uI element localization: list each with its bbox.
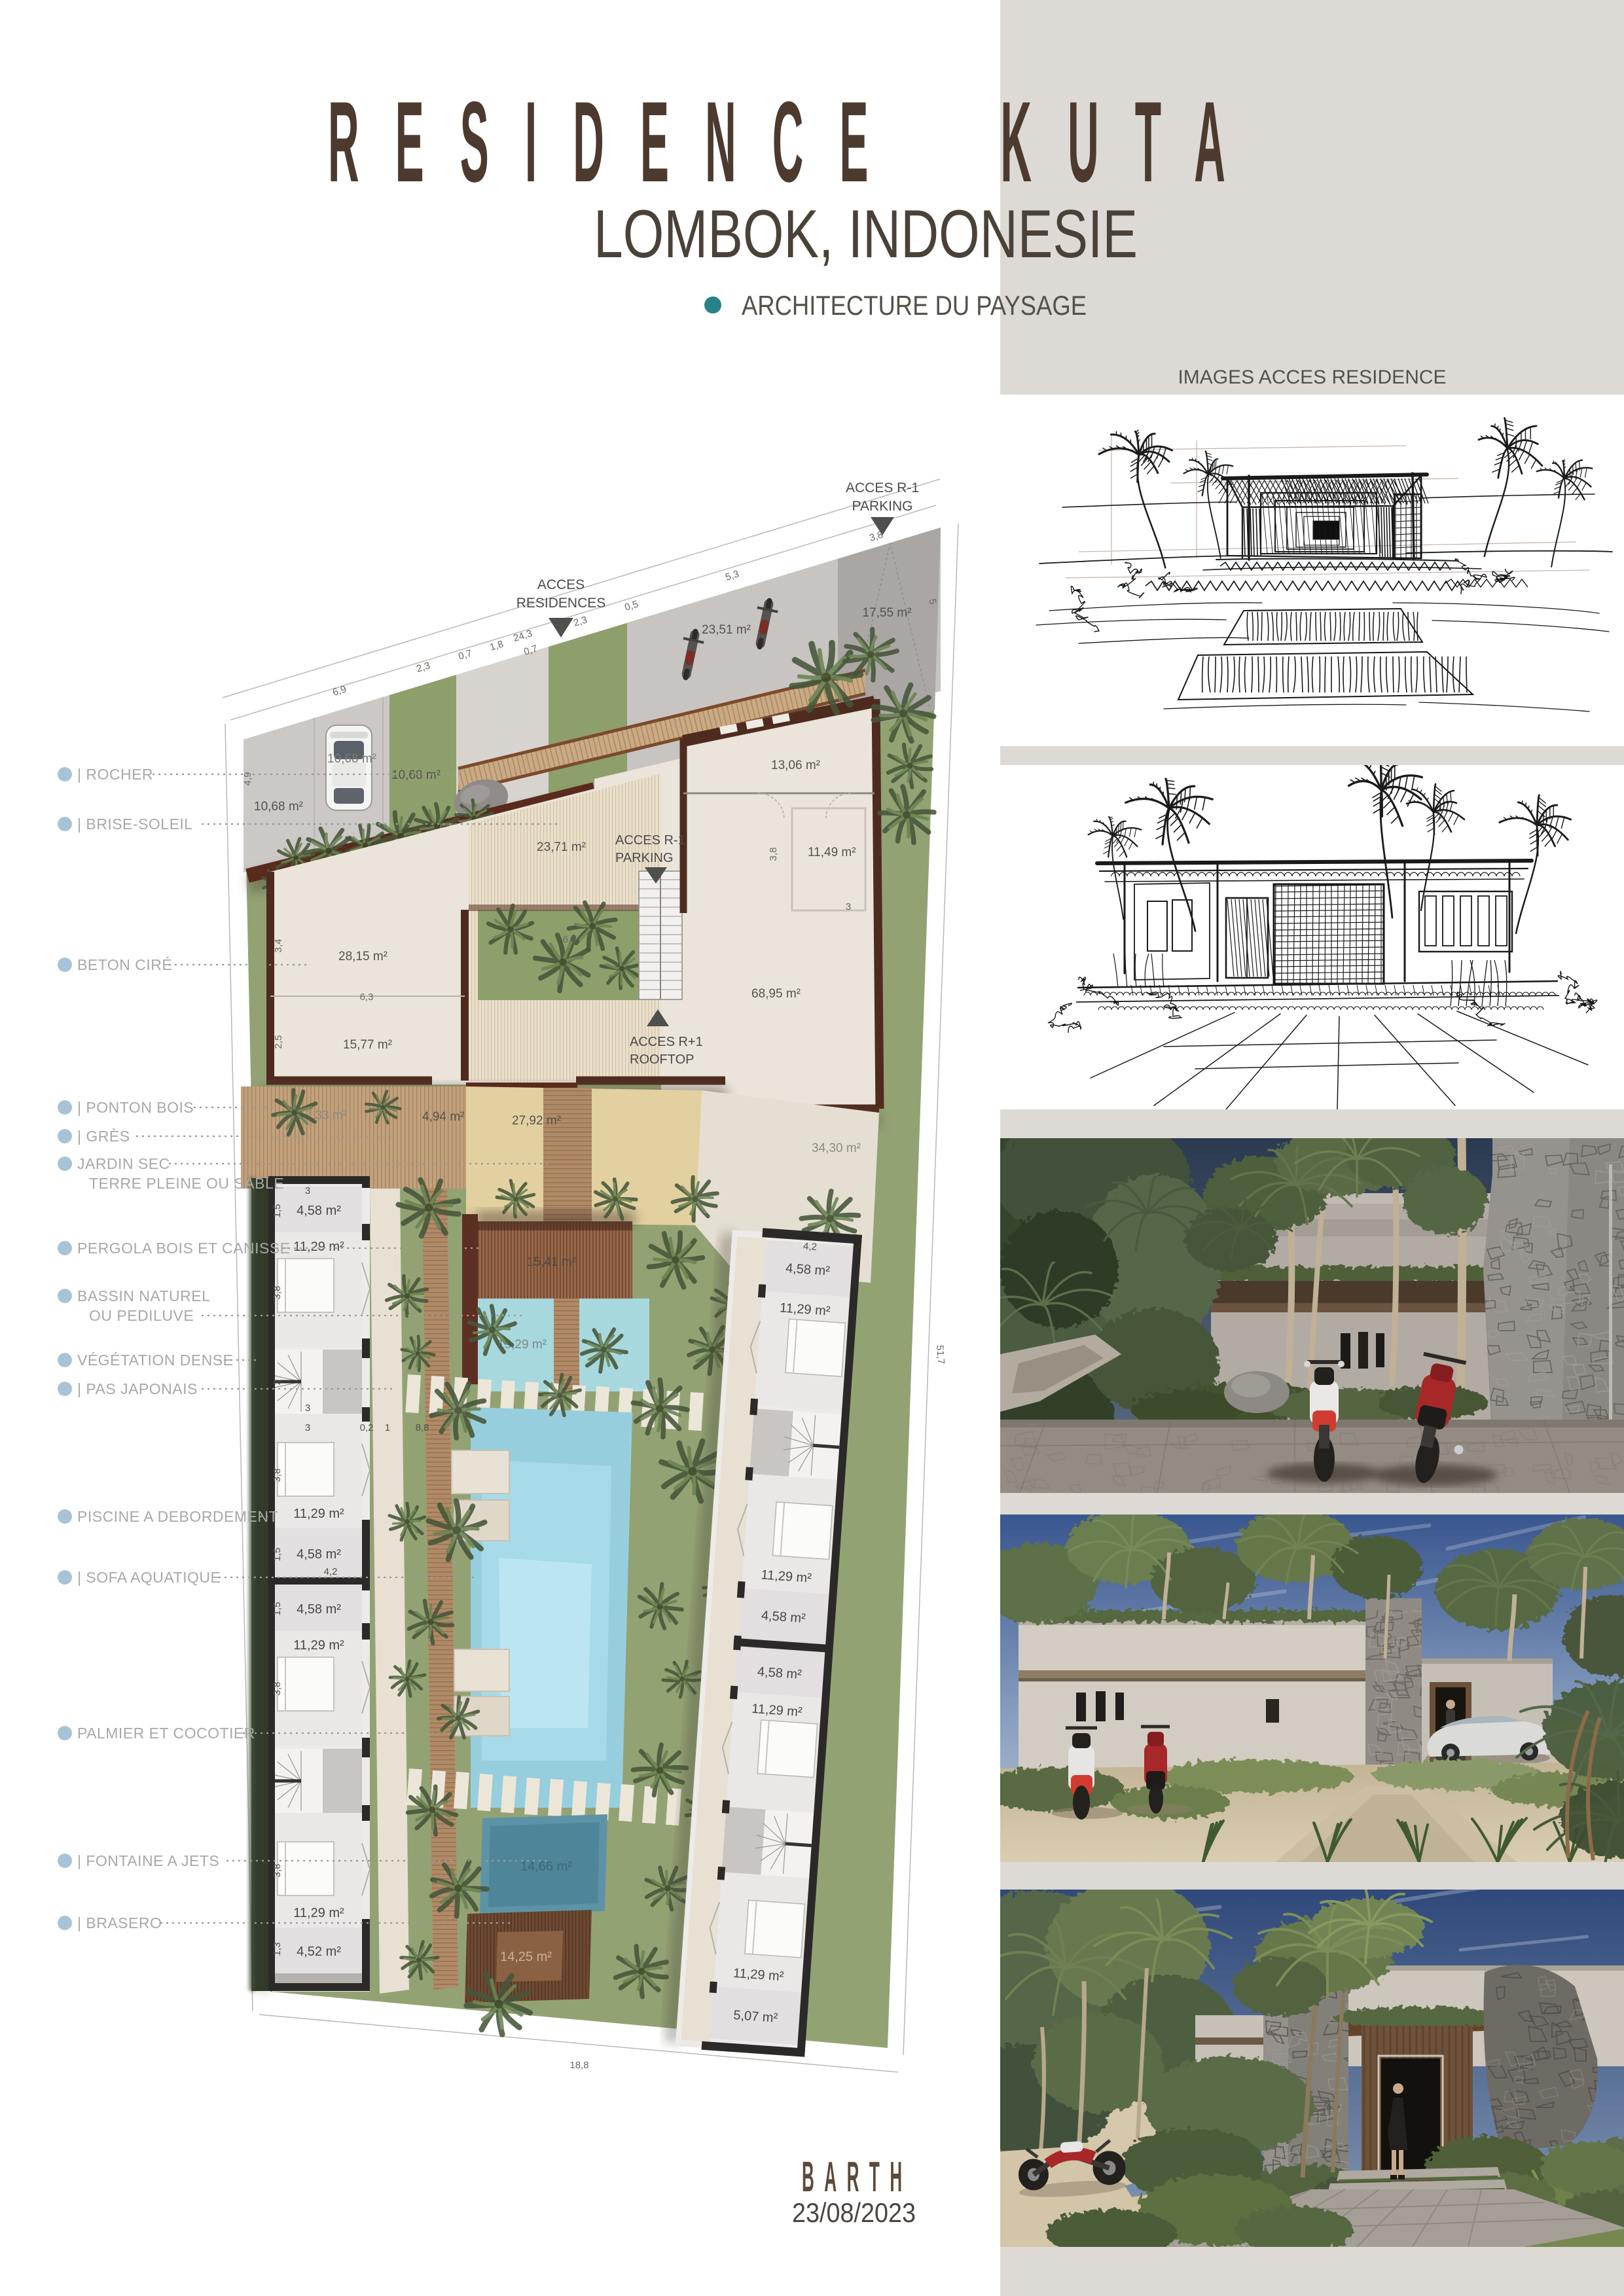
svg-text:BARTH: BARTH xyxy=(802,2153,902,2201)
svg-text:PARKING: PARKING xyxy=(852,499,913,514)
svg-text:18,8: 18,8 xyxy=(569,2060,588,2071)
svg-text:3,8: 3,8 xyxy=(272,1682,283,1696)
svg-text:14,25 m²: 14,25 m² xyxy=(500,1950,552,1964)
svg-text:14,66 m²: 14,66 m² xyxy=(520,1859,572,1874)
svg-text:4,2: 4,2 xyxy=(324,1566,338,1577)
svg-text:| ROCHER: | ROCHER xyxy=(77,766,153,783)
svg-text:6,3: 6,3 xyxy=(360,992,374,1003)
svg-text:VÉGÉTATION DENSE: VÉGÉTATION DENSE xyxy=(77,1352,233,1369)
svg-text:4,58 m²: 4,58 m² xyxy=(297,1204,341,1218)
svg-text:28,15 m²: 28,15 m² xyxy=(338,950,388,963)
svg-text:OU PEDILUVE: OU PEDILUVE xyxy=(89,1307,194,1324)
svg-text:1,5: 1,5 xyxy=(272,1548,283,1562)
svg-text:6,9: 6,9 xyxy=(331,684,348,698)
svg-text:0,2: 0,2 xyxy=(360,1422,374,1433)
svg-text:PALMIER ET COCOTIER: PALMIER ET COCOTIER xyxy=(77,1725,255,1742)
svg-text:2,3: 2,3 xyxy=(415,660,431,675)
svg-text:1,3: 1,3 xyxy=(272,1943,283,1956)
svg-text:8,8: 8,8 xyxy=(416,1422,429,1433)
svg-text:| PONTON BOIS: | PONTON BOIS xyxy=(77,1099,194,1116)
svg-text:23,51 m²: 23,51 m² xyxy=(702,623,751,637)
svg-text:BASSIN NATUREL: BASSIN NATUREL xyxy=(77,1287,210,1304)
svg-text:3: 3 xyxy=(305,1422,310,1433)
svg-text:PARKING: PARKING xyxy=(615,851,674,865)
svg-text:| SOFA AQUATIQUE: | SOFA AQUATIQUE xyxy=(77,1569,221,1586)
svg-text:ACCES R-1: ACCES R-1 xyxy=(615,833,685,848)
svg-text:4,2: 4,2 xyxy=(803,1241,817,1253)
svg-text:ACCES: ACCES xyxy=(537,577,585,592)
svg-text:| FONTAINE A JETS: | FONTAINE A JETS xyxy=(77,1852,219,1869)
svg-text:3,4: 3,4 xyxy=(273,939,284,953)
svg-text:5,3: 5,3 xyxy=(724,569,740,583)
svg-text:ACCES R-1: ACCES R-1 xyxy=(846,480,919,495)
svg-text:17,55 m²: 17,55 m² xyxy=(863,606,912,620)
svg-text:ACCES R+1: ACCES R+1 xyxy=(630,1035,703,1049)
svg-text:11,49 m²: 11,49 m² xyxy=(808,846,856,859)
svg-text:1,5: 1,5 xyxy=(272,1602,283,1616)
svg-text:4,58 m²: 4,58 m² xyxy=(297,1547,341,1562)
svg-text:10,68 m²: 10,68 m² xyxy=(327,752,376,766)
svg-text:11,29 m²: 11,29 m² xyxy=(293,1638,344,1653)
svg-text:27,92 m²: 27,92 m² xyxy=(512,1114,561,1128)
svg-text:15,77 m²: 15,77 m² xyxy=(343,1038,392,1052)
svg-text:0,5: 0,5 xyxy=(623,599,640,613)
svg-text:2,3: 2,3 xyxy=(572,615,588,629)
svg-text:3,8: 3,8 xyxy=(272,1286,283,1300)
svg-text:11,29 m²: 11,29 m² xyxy=(293,1240,344,1254)
svg-text:24,3: 24,3 xyxy=(512,628,533,644)
svg-text:ROOFTOP: ROOFTOP xyxy=(630,1052,695,1067)
svg-text:1: 1 xyxy=(385,1422,390,1433)
svg-text:| GRÈS: | GRÈS xyxy=(77,1128,130,1145)
svg-text:3: 3 xyxy=(305,1185,310,1196)
svg-text:6,3: 6,3 xyxy=(563,934,577,945)
svg-text:4,52 m²: 4,52 m² xyxy=(297,1945,341,1959)
svg-text:2: 2 xyxy=(272,1380,283,1385)
svg-text:RESIDENCES: RESIDENCES xyxy=(516,596,606,611)
svg-text:TERRE PLEINE OU SABLE: TERRE PLEINE OU SABLE xyxy=(89,1175,284,1192)
svg-text:15,41 m²: 15,41 m² xyxy=(527,1255,576,1269)
svg-text:3: 3 xyxy=(305,1403,310,1414)
svg-text:3,8: 3,8 xyxy=(272,1469,283,1482)
svg-text:23,71 m²: 23,71 m² xyxy=(537,840,586,854)
svg-text:BETON CIRÉ: BETON CIRÉ xyxy=(77,956,172,973)
svg-text:11,29 m²: 11,29 m² xyxy=(293,1507,344,1521)
svg-text:23/08/2023: 23/08/2023 xyxy=(792,2197,916,2228)
svg-text:PERGOLA BOIS ET CANISSE: PERGOLA BOIS ET CANISSE xyxy=(77,1240,291,1257)
svg-text:68,95 m²: 68,95 m² xyxy=(751,987,801,1001)
svg-text:3: 3 xyxy=(846,901,851,912)
svg-text:PISCINE A DEBORDEMENT: PISCINE A DEBORDEMENT xyxy=(77,1508,278,1525)
svg-text:10,68 m²: 10,68 m² xyxy=(391,768,441,782)
svg-text:4,58 m²: 4,58 m² xyxy=(297,1602,341,1617)
svg-text:34,30 m²: 34,30 m² xyxy=(812,1141,861,1155)
svg-text:11,29 m²: 11,29 m² xyxy=(293,1906,344,1920)
svg-text:10,68 m²: 10,68 m² xyxy=(254,800,303,814)
svg-text:| BRASERO: | BRASERO xyxy=(77,1914,162,1931)
svg-text:JARDIN SEC: JARDIN SEC xyxy=(77,1155,170,1172)
svg-text:2,5: 2,5 xyxy=(273,1035,284,1049)
svg-text:| PAS JAPONAIS: | PAS JAPONAIS xyxy=(77,1380,198,1397)
svg-text:1,5: 1,5 xyxy=(272,1204,283,1218)
svg-text:| BRISE-SOLEIL: | BRISE-SOLEIL xyxy=(77,816,193,833)
svg-text:3,8: 3,8 xyxy=(272,1864,283,1878)
svg-text:51,7: 51,7 xyxy=(934,1345,947,1365)
svg-text:13,06 m²: 13,06 m² xyxy=(771,759,820,772)
svg-text:4,94 m²: 4,94 m² xyxy=(422,1110,464,1124)
svg-text:3,8: 3,8 xyxy=(768,848,779,861)
